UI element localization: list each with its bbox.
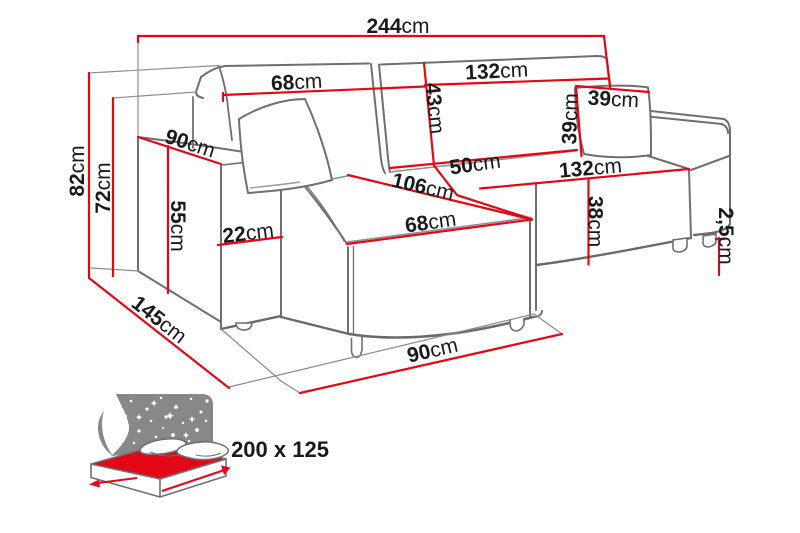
svg-text:39cm: 39cm [558,93,583,145]
svg-text:72cm: 72cm [92,162,115,213]
svg-text:132cm: 132cm [558,154,623,182]
svg-text:200 x 125: 200 x 125 [231,437,329,462]
svg-text:106cm: 106cm [390,169,457,206]
svg-text:2,5cm: 2,5cm [714,207,737,264]
svg-text:43cm: 43cm [420,82,448,135]
svg-text:145cm: 145cm [127,291,191,348]
svg-text:39cm: 39cm [587,87,639,113]
svg-text:55cm: 55cm [166,200,189,251]
svg-text:132cm: 132cm [465,58,529,84]
svg-text:50cm: 50cm [448,150,502,180]
svg-text:38cm: 38cm [584,196,607,247]
svg-text:82cm: 82cm [66,145,89,196]
svg-text:68cm: 68cm [270,70,322,96]
svg-text:22cm: 22cm [221,219,275,248]
svg-text:90cm: 90cm [162,125,218,163]
svg-text:244cm: 244cm [366,15,429,38]
svg-text:68cm: 68cm [404,208,458,238]
